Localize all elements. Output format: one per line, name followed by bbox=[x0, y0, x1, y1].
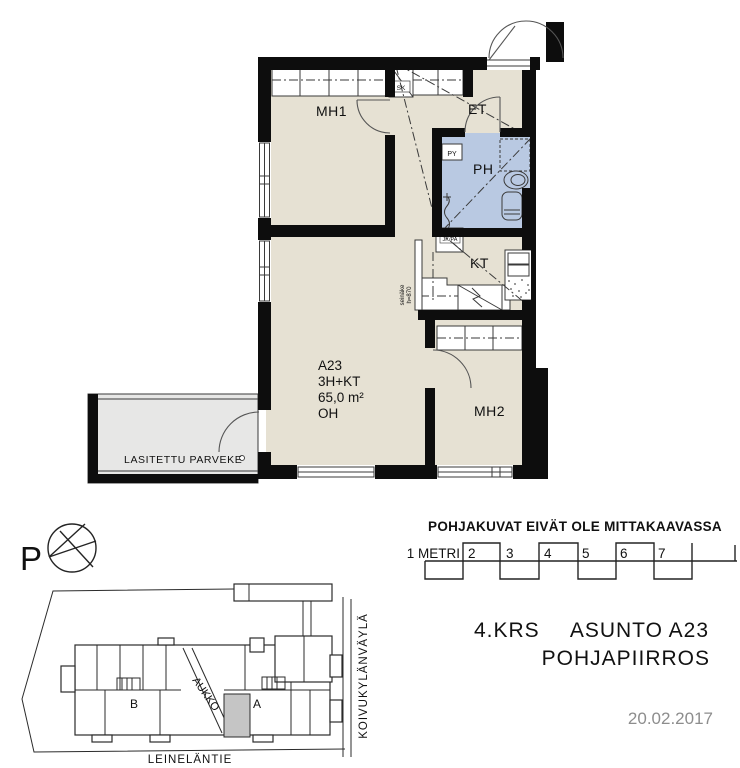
wall-segment bbox=[500, 128, 536, 137]
north-label: P bbox=[20, 540, 42, 577]
street-label-east: KOIVUKYLÄNVÄYLÄ bbox=[358, 613, 370, 739]
title-date: 20.02.2017 bbox=[628, 709, 713, 728]
room-label-oh: OH bbox=[318, 406, 338, 421]
apartment-area: 65,0 m² bbox=[318, 390, 364, 405]
scale-tick: 2 bbox=[468, 546, 476, 561]
title-apartment: ASUNTO A23 bbox=[570, 619, 709, 642]
wall-segment bbox=[522, 188, 536, 250]
wall-segment bbox=[522, 300, 536, 472]
entrance-door-leaf bbox=[489, 26, 515, 60]
wall-segment bbox=[536, 368, 548, 472]
site-balcony bbox=[158, 638, 174, 645]
balcony-wall bbox=[88, 474, 258, 483]
wall-segment bbox=[258, 465, 297, 479]
wall-segment bbox=[432, 128, 442, 237]
wall-segment bbox=[432, 228, 536, 237]
title-floor: 4.KRS bbox=[474, 619, 540, 642]
site-building-b-label: B bbox=[130, 697, 138, 711]
wall-segment bbox=[530, 135, 536, 188]
title-block: 4.KRS ASUNTO A23 POHJAPIIRROS 20.02.2017 bbox=[474, 619, 713, 728]
site-balcony bbox=[330, 700, 342, 722]
room-label-mh2: MH2 bbox=[474, 403, 505, 419]
scale-tick: 4 bbox=[544, 546, 552, 561]
scale-tick: 5 bbox=[582, 546, 590, 561]
site-balcony bbox=[61, 666, 75, 692]
drawing-canvas: LASITETTU PARVEKE SK bbox=[0, 0, 740, 768]
wall-segment bbox=[418, 310, 536, 320]
wall-segment bbox=[258, 225, 395, 237]
title-drawing-type: POHJAPIIRROS bbox=[542, 647, 710, 670]
room-label-mh1: MH1 bbox=[316, 103, 347, 119]
entrance-opening bbox=[487, 57, 530, 70]
scale-bar: POHJAKUVAT EIVÄT OLE MITTAKAAVASSA 1 MET… bbox=[407, 519, 737, 579]
floor-plan-page: LASITETTU PARVEKE SK bbox=[0, 0, 740, 768]
balcony-floor bbox=[88, 394, 258, 483]
compass: P bbox=[20, 524, 96, 577]
wall-segment bbox=[546, 22, 564, 62]
apartment-type: 3H+KT bbox=[318, 374, 360, 389]
washer-label: PY bbox=[447, 151, 457, 158]
balcony-label: LASITETTU PARVEKE bbox=[124, 454, 242, 466]
wall-segment bbox=[258, 302, 271, 410]
wall-segment bbox=[385, 135, 395, 225]
wall-segment bbox=[425, 320, 435, 348]
compass-needle bbox=[60, 531, 93, 567]
scale-tick: 6 bbox=[620, 546, 628, 561]
compass-needle bbox=[49, 541, 96, 557]
room-label-kt: KT bbox=[470, 255, 489, 271]
wall-segment bbox=[425, 388, 435, 465]
room-label-ph: PH bbox=[473, 161, 493, 177]
site-building-part bbox=[250, 638, 264, 652]
apartment-id: A23 bbox=[318, 358, 342, 373]
wall-segment bbox=[531, 250, 536, 300]
site-balcony bbox=[92, 735, 112, 742]
street-label-south: LEINELÄNTIE bbox=[148, 754, 233, 766]
wall-segment bbox=[266, 57, 487, 70]
highlighted-unit bbox=[224, 694, 250, 737]
scale-tick: 3 bbox=[506, 546, 514, 561]
scale-disclaimer: POHJAKUVAT EIVÄT OLE MITTAKAAVASSA bbox=[428, 519, 722, 534]
wall-segment bbox=[258, 57, 271, 142]
site-plan: B A AUKKO LEINELÄNTIE KOIVUKYLÄNVÄYLÄ bbox=[22, 584, 370, 766]
half-wall-note-line1: seinäke bbox=[400, 284, 406, 305]
site-balcony bbox=[330, 655, 342, 677]
scale-unit-label: 1 METRI bbox=[407, 546, 460, 561]
wall-segment bbox=[385, 57, 395, 97]
fridge-label: JK/PA bbox=[443, 237, 458, 243]
site-balcony bbox=[150, 735, 170, 742]
site-building-a-label: A bbox=[253, 697, 261, 711]
wall-segment bbox=[432, 128, 465, 137]
room-label-et: ET bbox=[468, 101, 487, 117]
balcony-wall bbox=[88, 394, 98, 483]
wall-segment bbox=[463, 57, 473, 97]
balcony: LASITETTU PARVEKE bbox=[88, 394, 259, 483]
compass-circle bbox=[48, 524, 96, 572]
apartment-plan: LASITETTU PARVEKE SK bbox=[88, 21, 564, 483]
half-wall-note-line2: h=870 bbox=[407, 286, 413, 304]
wall-segment bbox=[375, 465, 437, 479]
half-wall bbox=[415, 240, 422, 310]
scale-tick: 7 bbox=[658, 546, 666, 561]
site-balcony bbox=[253, 735, 273, 742]
